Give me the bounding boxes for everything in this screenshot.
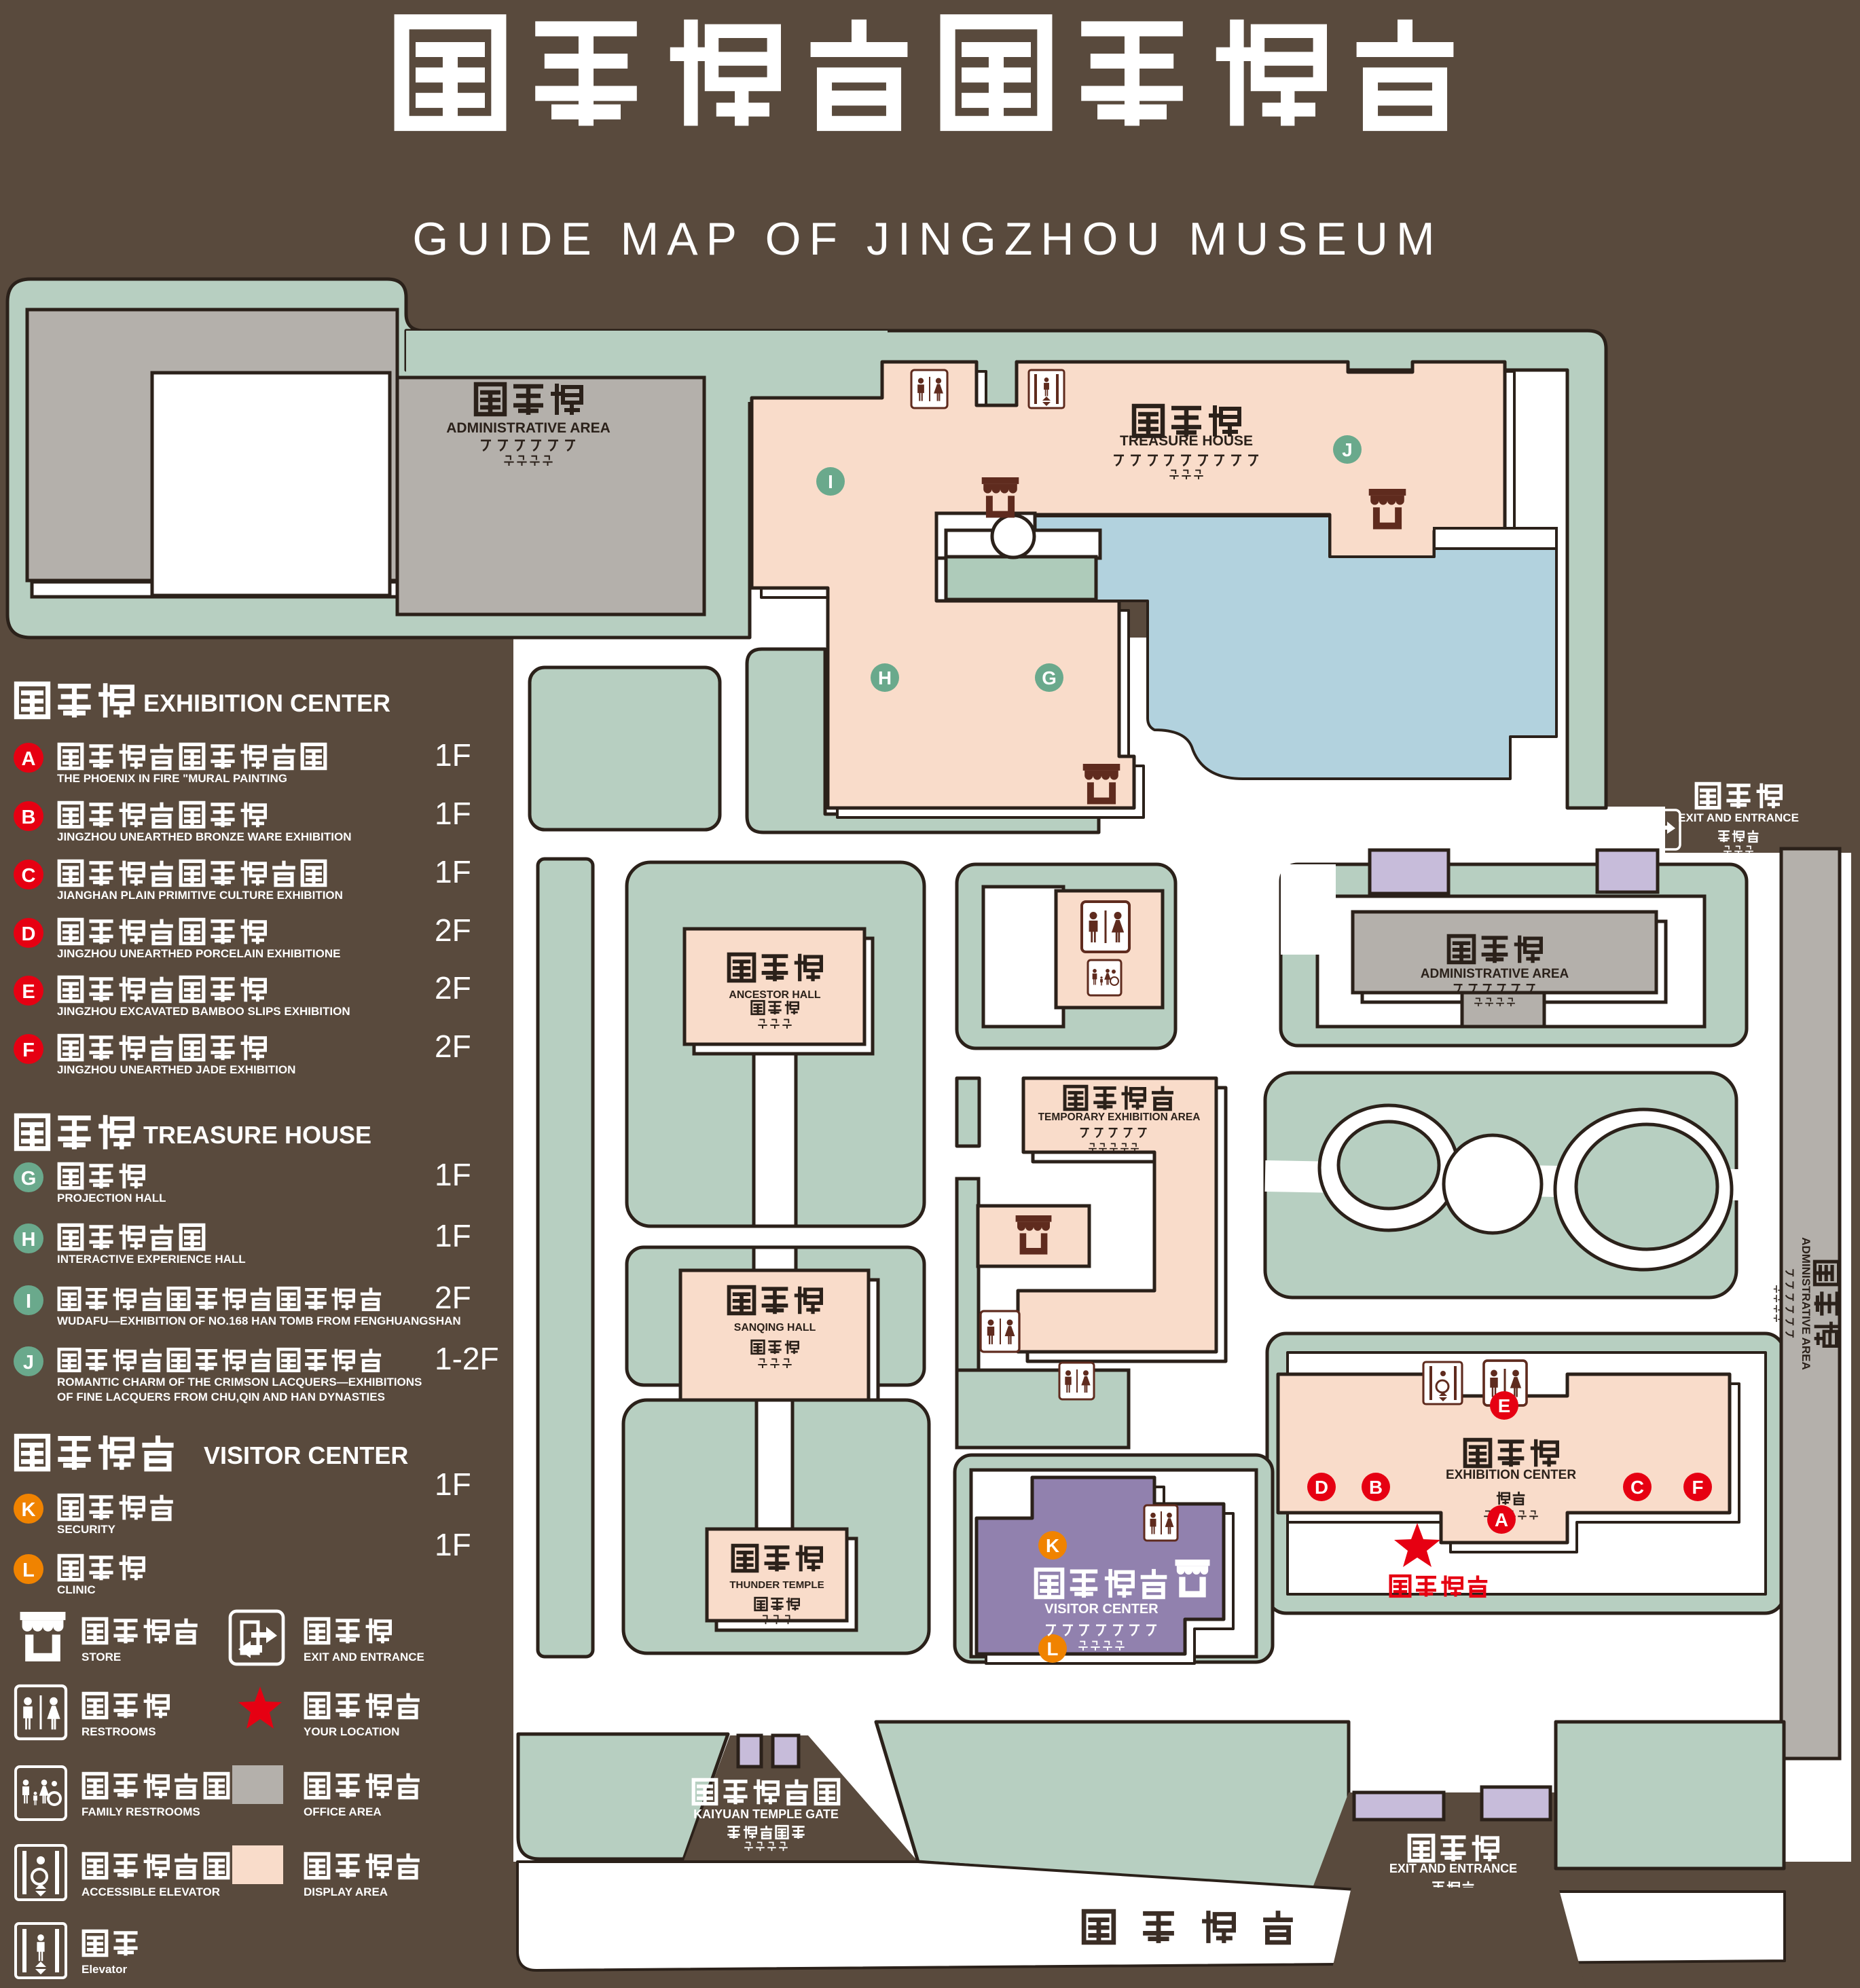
svg-text:1F: 1F [435,1527,471,1562]
svg-text:ROMANTIC CHARM OF THE CRIMSON: ROMANTIC CHARM OF THE CRIMSON LACQUERS—E… [57,1376,422,1388]
svg-text:THUNDER TEMPLE: THUNDER TEMPLE [729,1579,824,1591]
svg-text:EXHIBITION CENTER: EXHIBITION CENTER [143,689,390,717]
svg-text:OF FINE LACQUERS FROM CHU,QIN: OF FINE LACQUERS FROM CHU,QIN AND HAN DY… [57,1391,385,1403]
svg-text:L: L [1047,1638,1059,1659]
svg-text:J: J [1342,439,1352,460]
svg-text:1F: 1F [435,1467,471,1502]
svg-text:ANCESTOR HALL: ANCESTOR HALL [729,989,820,1001]
svg-text:G: G [1042,667,1057,688]
svg-text:GUIDE MAP OF JINGZHOU MUSEUM: GUIDE MAP OF JINGZHOU MUSEUM [412,213,1442,265]
svg-text:B: B [22,807,36,828]
svg-text:A: A [22,748,36,770]
svg-text:D: D [22,923,36,945]
svg-text:I: I [26,1291,31,1312]
svg-text:I: I [828,471,833,492]
svg-text:ACCESSIBLE ELEVATOR: ACCESSIBLE ELEVATOR [81,1885,220,1898]
svg-text:JIANGHAN PLAIN PRIMITIVE CULTU: JIANGHAN PLAIN PRIMITIVE CULTURE EXHIBIT… [57,889,343,902]
svg-text:KAIYUAN TEMPLE GATE: KAIYUAN TEMPLE GATE [693,1807,839,1821]
svg-text:CLINIC: CLINIC [57,1583,96,1596]
svg-text:JINGZHOU EXCAVATED BAMBOO SLIP: JINGZHOU EXCAVATED BAMBOO SLIPS EXHIBITI… [57,1005,350,1018]
svg-text:F: F [22,1039,35,1061]
svg-text:B: B [1369,1477,1383,1498]
svg-text:JINGZHOU UNEARTHED BRONZE WARE: JINGZHOU UNEARTHED BRONZE WARE EXHIBITIO… [57,830,352,843]
svg-text:OFFICE AREA: OFFICE AREA [304,1805,382,1818]
svg-text:EXIT AND ENTRANCE: EXIT AND ENTRANCE [304,1651,424,1663]
svg-text:ADMINISTRATIVE AREA: ADMINISTRATIVE AREA [446,420,610,436]
svg-text:SANQING HALL: SANQING HALL [734,1322,816,1333]
svg-text:G: G [21,1168,37,1190]
svg-text:K: K [22,1499,36,1521]
svg-text:DISPLAY AREA: DISPLAY AREA [304,1885,388,1898]
svg-text:WUDAFU—EXHIBITION OF NO.168 HA: WUDAFU—EXHIBITION OF NO.168 HAN TOMB FRO… [57,1314,461,1327]
svg-text:2F: 2F [435,1029,471,1064]
svg-text:TREASURE HOUSE: TREASURE HOUSE [1120,433,1253,449]
svg-text:ADMINISTRATIVE AREA: ADMINISTRATIVE AREA [1421,967,1569,981]
svg-text:A: A [1495,1509,1508,1530]
svg-text:1F: 1F [435,1218,471,1253]
svg-text:YOUR LOCATION: YOUR LOCATION [304,1725,399,1738]
svg-text:RESTROOMS: RESTROOMS [81,1725,156,1738]
svg-text:TREASURE HOUSE: TREASURE HOUSE [143,1121,371,1149]
svg-text:C: C [22,865,36,887]
svg-text:C: C [1630,1477,1644,1498]
svg-text:PROJECTION HALL: PROJECTION HALL [57,1192,166,1204]
svg-text:1F: 1F [435,854,471,889]
svg-text:F: F [1692,1477,1704,1498]
svg-text:L: L [22,1560,35,1581]
svg-text:K: K [1046,1535,1059,1556]
svg-text:INTERACTIVE EXPERIENCE HALL: INTERACTIVE EXPERIENCE HALL [57,1253,246,1266]
svg-text:J: J [23,1352,34,1374]
svg-text:VISITOR CENTER: VISITOR CENTER [204,1441,408,1469]
svg-text:TEMPORARY EXHIBITION AREA: TEMPORARY EXHIBITION AREA [1038,1111,1201,1123]
svg-text:D: D [1315,1477,1328,1498]
svg-text:EXIT AND ENTRANCE: EXIT AND ENTRANCE [1389,1862,1517,1875]
svg-text:ADMINISTRATIVE AREA: ADMINISTRATIVE AREA [1800,1237,1812,1370]
svg-text:EXIT AND ENTRANCE: EXIT AND ENTRANCE [1678,811,1799,824]
svg-text:H: H [22,1229,36,1251]
svg-text:E: E [22,981,35,1003]
svg-text:EXHIBITION CENTER: EXHIBITION CENTER [1446,1468,1576,1482]
svg-text:E: E [1498,1395,1511,1416]
svg-text:1F: 1F [435,796,471,831]
svg-text:2F: 2F [435,970,471,1006]
svg-text:FAMILY RESTROOMS: FAMILY RESTROOMS [81,1805,200,1818]
svg-text:STORE: STORE [81,1651,121,1663]
svg-text:JINGZHOU UNEARTHED JADE EXHIBI: JINGZHOU UNEARTHED JADE EXHIBITION [57,1063,295,1076]
svg-text:H: H [878,667,892,688]
svg-text:1F: 1F [435,737,471,773]
svg-text:2F: 2F [435,1280,471,1315]
svg-text:JINGZHOU UNEARTHED PORCELAIN E: JINGZHOU UNEARTHED PORCELAIN EXHIBITIONE [57,947,340,960]
svg-text:SECURITY: SECURITY [57,1523,116,1536]
svg-text:2F: 2F [435,913,471,948]
svg-text:Elevator: Elevator [81,1963,127,1976]
svg-text:1-2F: 1-2F [435,1341,499,1376]
svg-text:1F: 1F [435,1157,471,1192]
svg-text:VISITOR CENTER: VISITOR CENTER [1044,1602,1159,1617]
svg-text:THE PHOENIX IN FIRE "MURAL PAI: THE PHOENIX IN FIRE "MURAL PAINTING [57,772,287,785]
